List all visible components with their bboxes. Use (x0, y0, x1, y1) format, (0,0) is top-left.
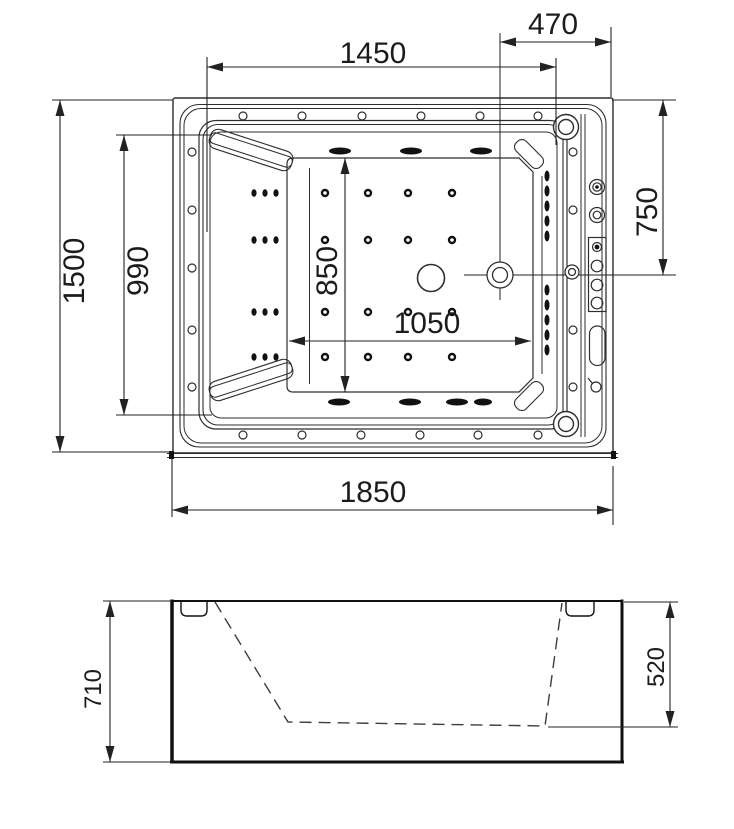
drain-icon (418, 265, 445, 292)
corner-seat-top-left (207, 127, 295, 173)
apron-strip (167, 451, 618, 459)
side-notch-right (566, 601, 594, 616)
top-view: 1450 470 1500 (52, 8, 676, 525)
dim-label-990: 990 (122, 246, 155, 296)
oval-jets (328, 148, 492, 406)
dim-label-470: 470 (528, 8, 578, 41)
wall-jet-right (565, 265, 579, 279)
corner-jet-bottom-right (554, 412, 579, 437)
panel-button-filled (593, 243, 602, 252)
corner-jet-top-right (554, 115, 579, 140)
side-outline (170, 600, 624, 764)
drawing-svg: 1450 470 1500 (0, 0, 734, 829)
deck-hole (588, 378, 601, 392)
dim-label-1050: 1050 (394, 307, 461, 340)
hidden-bowl-profile (215, 602, 562, 726)
dim-label-750: 750 (631, 187, 664, 237)
side-notch-left (181, 601, 207, 616)
dim-inner-height-520: 520 (548, 602, 678, 727)
dim-label-1500: 1500 (58, 238, 91, 305)
corner-seat-bottom-left (207, 357, 295, 403)
dim-label-1450: 1450 (340, 37, 407, 70)
overflow-pill (590, 326, 606, 366)
jet-crosshair-icon (464, 33, 676, 300)
dim-label-710: 710 (80, 669, 107, 709)
right-wall-dash-jets (545, 171, 550, 356)
panel-button (591, 279, 603, 291)
panel-button (591, 297, 603, 309)
dim-label-520: 520 (643, 647, 670, 687)
corner-wedge-top-right (512, 137, 546, 171)
air-jet-triple-dots (251, 189, 278, 361)
panel-button (591, 260, 603, 272)
dim-jet-offset-750: 750 (612, 100, 676, 275)
dim-overall-width-1850: 1850 (172, 459, 613, 525)
corner-wedge-bottom-right (512, 379, 546, 413)
dim-floor-depth-850: 850 (311, 158, 350, 392)
bathtub-technical-drawing: 1450 470 1500 (0, 0, 734, 829)
dim-label-1850: 1850 (340, 476, 407, 509)
dim-label-850: 850 (311, 246, 344, 296)
dimensions-side-view: 710 520 (80, 601, 678, 762)
dim-inner-depth-990: 990 (116, 135, 212, 415)
side-view: 710 520 (80, 600, 678, 764)
dim-rim-length-1450: 1450 (207, 37, 556, 232)
control-panel (588, 180, 606, 393)
dim-overall-height-710: 710 (80, 601, 172, 762)
